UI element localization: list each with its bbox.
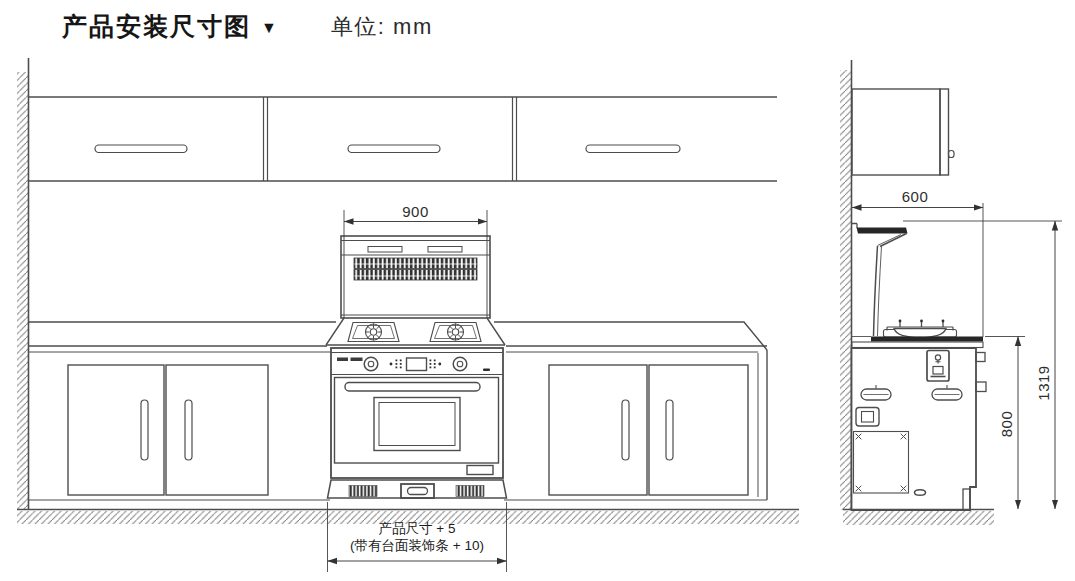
oven-window bbox=[374, 398, 460, 451]
plinth-handle bbox=[401, 484, 434, 498]
control-display bbox=[407, 358, 427, 371]
dimension-depth: 600 bbox=[852, 188, 983, 337]
dimension-hood-width: 900 bbox=[344, 203, 487, 238]
control-knob-left bbox=[364, 357, 378, 371]
hood-grille bbox=[354, 270, 477, 281]
right-wall-hatch bbox=[840, 60, 852, 510]
side-connector-tab bbox=[976, 353, 985, 362]
countertop-side bbox=[852, 337, 983, 348]
installation-diagram-page: 产品安装尺寸图 ▼ 单位: mm bbox=[0, 0, 1075, 581]
base-cabinet-right bbox=[549, 365, 748, 495]
brand-logo bbox=[337, 358, 363, 362]
hood-slot bbox=[368, 247, 402, 253]
lower-panel-badge bbox=[467, 466, 493, 475]
left-wall-hatch bbox=[17, 58, 29, 510]
cabinet-handle bbox=[586, 145, 680, 153]
technical-drawing: 900 bbox=[0, 0, 1075, 581]
plinth-vent bbox=[349, 486, 377, 497]
dim-label-600: 600 bbox=[902, 188, 929, 205]
stove-side-body bbox=[852, 348, 987, 510]
gas-burner-right bbox=[430, 323, 481, 342]
front-elevation: 900 bbox=[17, 58, 799, 572]
base-cabinet-left bbox=[68, 365, 268, 495]
plinth-vent bbox=[456, 486, 484, 497]
upper-cabinets bbox=[28, 97, 777, 181]
control-buttons-left bbox=[390, 360, 402, 369]
hood-grille bbox=[354, 258, 477, 269]
gas-burner-left bbox=[348, 323, 399, 342]
cabinet-handle bbox=[141, 400, 148, 460]
floor-right bbox=[843, 510, 994, 526]
control-buttons-right bbox=[430, 360, 442, 369]
oven-door-handle bbox=[345, 383, 480, 392]
note-product-size-line2: (带有台面装饰条 + 10) bbox=[350, 538, 484, 553]
dim-label-900: 900 bbox=[402, 203, 429, 220]
cooktop-front bbox=[326, 318, 505, 345]
side-wall-cabinet bbox=[852, 89, 954, 175]
cabinet-handle bbox=[348, 145, 440, 153]
cabinet-knob bbox=[949, 151, 955, 158]
integrated-stove-front bbox=[328, 348, 507, 498]
panel-dash bbox=[483, 369, 490, 372]
dim-label-1319: 1319 bbox=[1035, 365, 1052, 400]
range-hood-front bbox=[341, 236, 490, 318]
note-product-size-line1: 产品尺寸 + 5 bbox=[379, 521, 456, 536]
dim-label-800: 800 bbox=[998, 411, 1015, 438]
range-hood-side bbox=[851, 224, 908, 337]
cabinet-handle bbox=[622, 400, 629, 460]
side-elevation: 600 bbox=[840, 60, 1062, 525]
gas-burner-side bbox=[884, 320, 957, 338]
side-connector-tab bbox=[976, 382, 986, 392]
hood-slot bbox=[428, 247, 462, 253]
dimension-worktop-height: 800 bbox=[985, 337, 1025, 510]
control-knob-right bbox=[453, 357, 467, 371]
cabinet-handle bbox=[95, 145, 187, 153]
cabinet-handle bbox=[666, 400, 673, 460]
cabinet-handle bbox=[185, 400, 192, 460]
